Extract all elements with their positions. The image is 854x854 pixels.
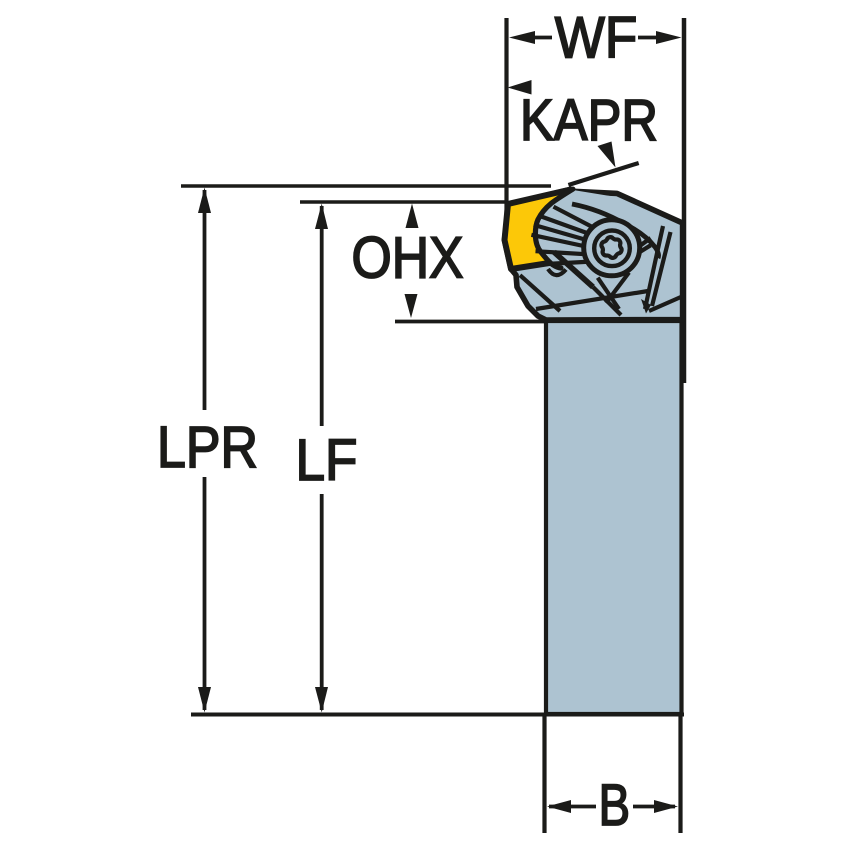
svg-text:WF: WF [555,5,638,70]
svg-text:OHX: OHX [352,226,464,291]
svg-text:LPR: LPR [157,415,258,480]
svg-text:KAPR: KAPR [520,88,658,153]
svg-text:LF: LF [296,428,358,493]
svg-text:B: B [599,773,631,838]
